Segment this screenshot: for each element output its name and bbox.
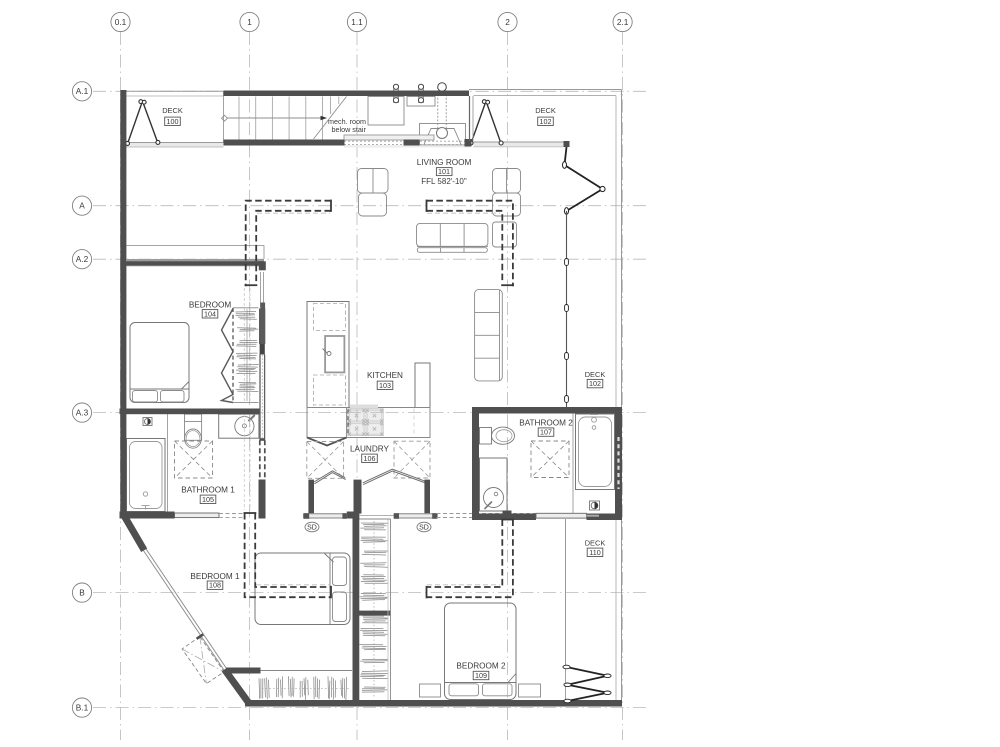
svg-text:100: 100 [167,117,179,126]
svg-text:110: 110 [589,548,600,557]
svg-text:2: 2 [505,17,510,27]
svg-text:LIVING ROOM: LIVING ROOM [417,158,472,167]
svg-text:SD: SD [307,525,317,532]
svg-text:1.1: 1.1 [351,17,363,27]
svg-text:106: 106 [364,454,376,463]
svg-text:102: 102 [589,379,601,388]
svg-text:BEDROOM 2: BEDROOM 2 [456,662,506,671]
svg-text:107: 107 [540,428,552,437]
svg-text:B.1: B.1 [76,703,89,713]
svg-text:104: 104 [204,309,216,318]
svg-text:A.3: A.3 [76,408,89,418]
svg-text:below stair: below stair [332,125,367,134]
svg-text:FFL 582'-10": FFL 582'-10" [421,177,467,186]
svg-text:DECK: DECK [585,370,606,379]
svg-text:0.1: 0.1 [115,17,127,27]
svg-text:DECK: DECK [162,106,183,115]
svg-text:BATHROOM 2: BATHROOM 2 [519,419,573,428]
svg-text:1: 1 [247,17,252,27]
svg-text:BATHROOM 1: BATHROOM 1 [181,486,235,495]
svg-text:BEDROOM 1: BEDROOM 1 [190,572,240,581]
svg-text:108: 108 [209,581,221,590]
svg-text:B: B [79,588,85,598]
svg-text:109: 109 [475,671,487,680]
svg-text:KITCHEN: KITCHEN [367,371,403,380]
svg-text:105: 105 [202,495,214,504]
svg-text:A.1: A.1 [76,86,89,96]
svg-text:A.2: A.2 [76,254,89,264]
svg-text:103: 103 [379,381,391,390]
svg-text:A: A [79,201,85,211]
svg-text:BEDROOM: BEDROOM [189,301,231,310]
svg-text:DECK: DECK [535,106,556,115]
svg-text:102: 102 [540,117,552,126]
svg-text:LAUNDRY: LAUNDRY [350,445,390,454]
svg-text:DECK: DECK [585,539,606,548]
svg-text:101: 101 [438,167,450,176]
svg-text:SD: SD [419,525,429,532]
svg-text:2.1: 2.1 [617,17,629,27]
